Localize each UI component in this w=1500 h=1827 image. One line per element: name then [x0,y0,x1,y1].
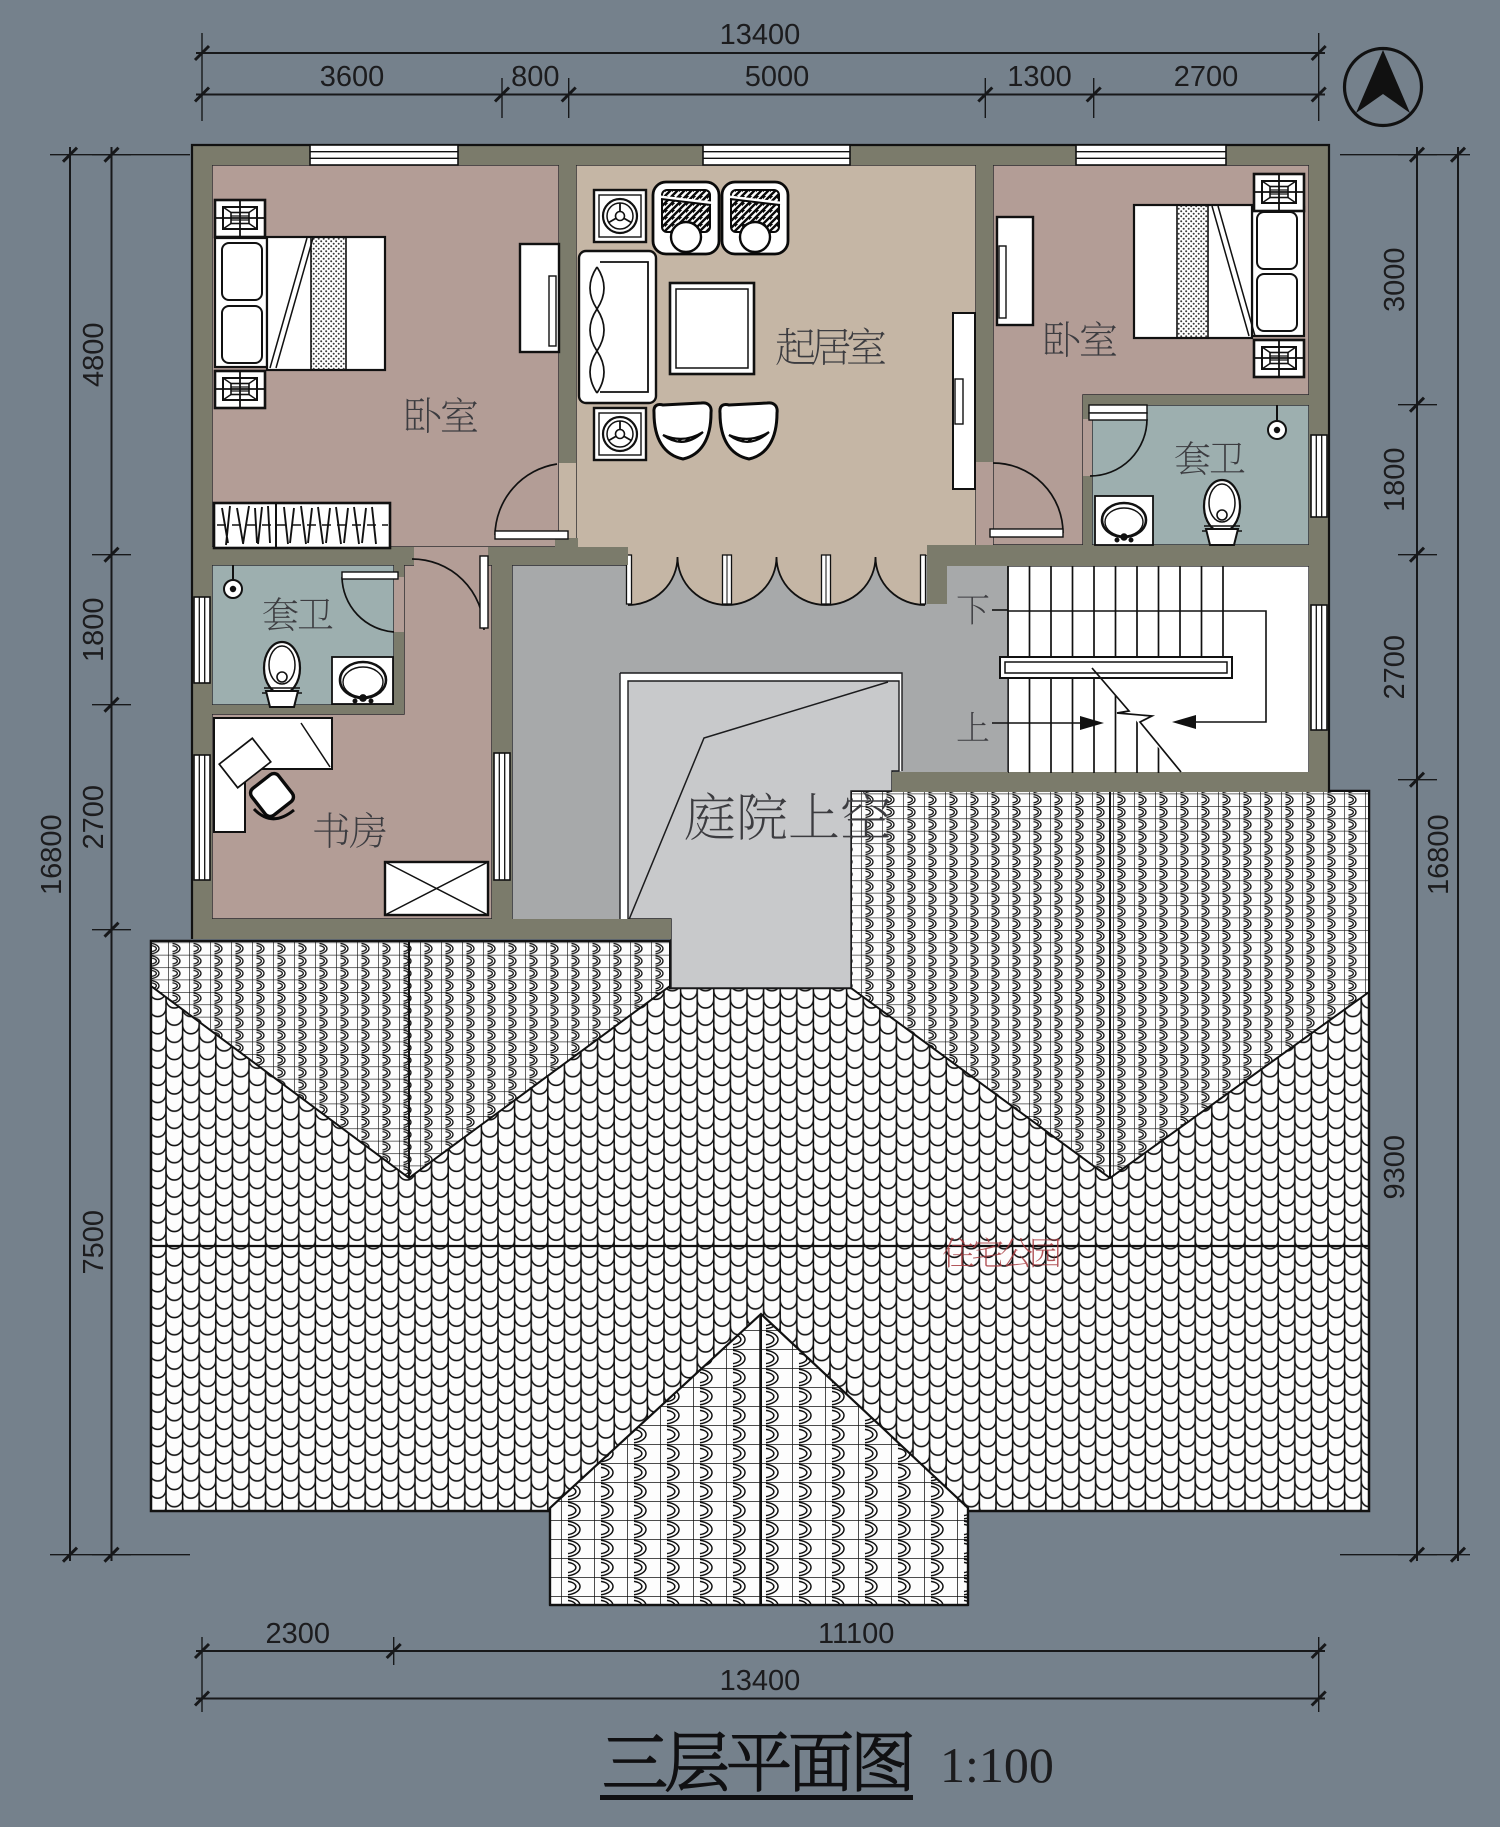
svg-text:3600: 3600 [320,61,385,93]
svg-text:1:100: 1:100 [940,1737,1054,1793]
svg-text:1800: 1800 [1379,447,1411,512]
svg-text:4800: 4800 [78,322,110,387]
svg-text:2700: 2700 [1379,635,1411,700]
svg-text:16800: 16800 [36,814,68,895]
svg-text:2300: 2300 [266,1618,331,1650]
svg-text:2700: 2700 [78,785,110,850]
svg-text:13400: 13400 [720,19,801,51]
svg-text:1800: 1800 [78,597,110,662]
svg-text:9300: 9300 [1379,1135,1411,1200]
svg-text:11100: 11100 [818,1618,894,1650]
svg-text:3000: 3000 [1379,247,1411,312]
svg-text:13400: 13400 [720,1665,801,1697]
svg-text:2700: 2700 [1174,61,1239,93]
svg-text:1300: 1300 [1007,61,1072,93]
svg-text:7500: 7500 [78,1210,110,1275]
svg-text:16800: 16800 [1423,814,1455,895]
svg-text:5000: 5000 [745,61,810,93]
svg-text:800: 800 [511,61,559,93]
